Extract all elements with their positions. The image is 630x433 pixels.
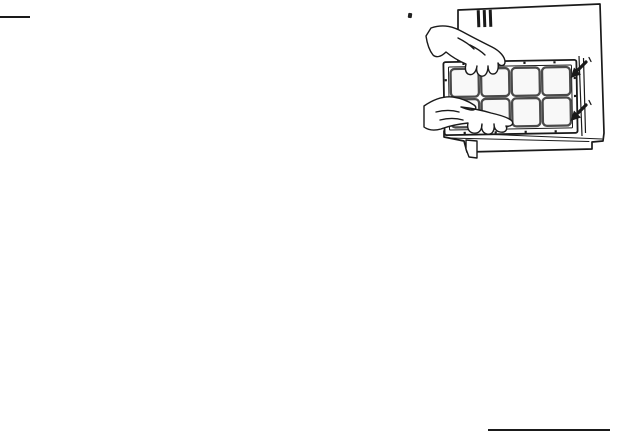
manual-page — [0, 0, 630, 433]
filter-cell — [512, 98, 540, 126]
appliance-left-foot — [466, 140, 477, 158]
filter-installation-illustration — [0, 0, 630, 433]
filter-cell — [542, 67, 570, 95]
filter-installation-svg — [0, 0, 630, 433]
vent-louvers — [477, 10, 493, 28]
filter-cell — [511, 67, 539, 95]
bottom-right-rule — [488, 429, 610, 431]
filter-cell — [543, 97, 571, 125]
